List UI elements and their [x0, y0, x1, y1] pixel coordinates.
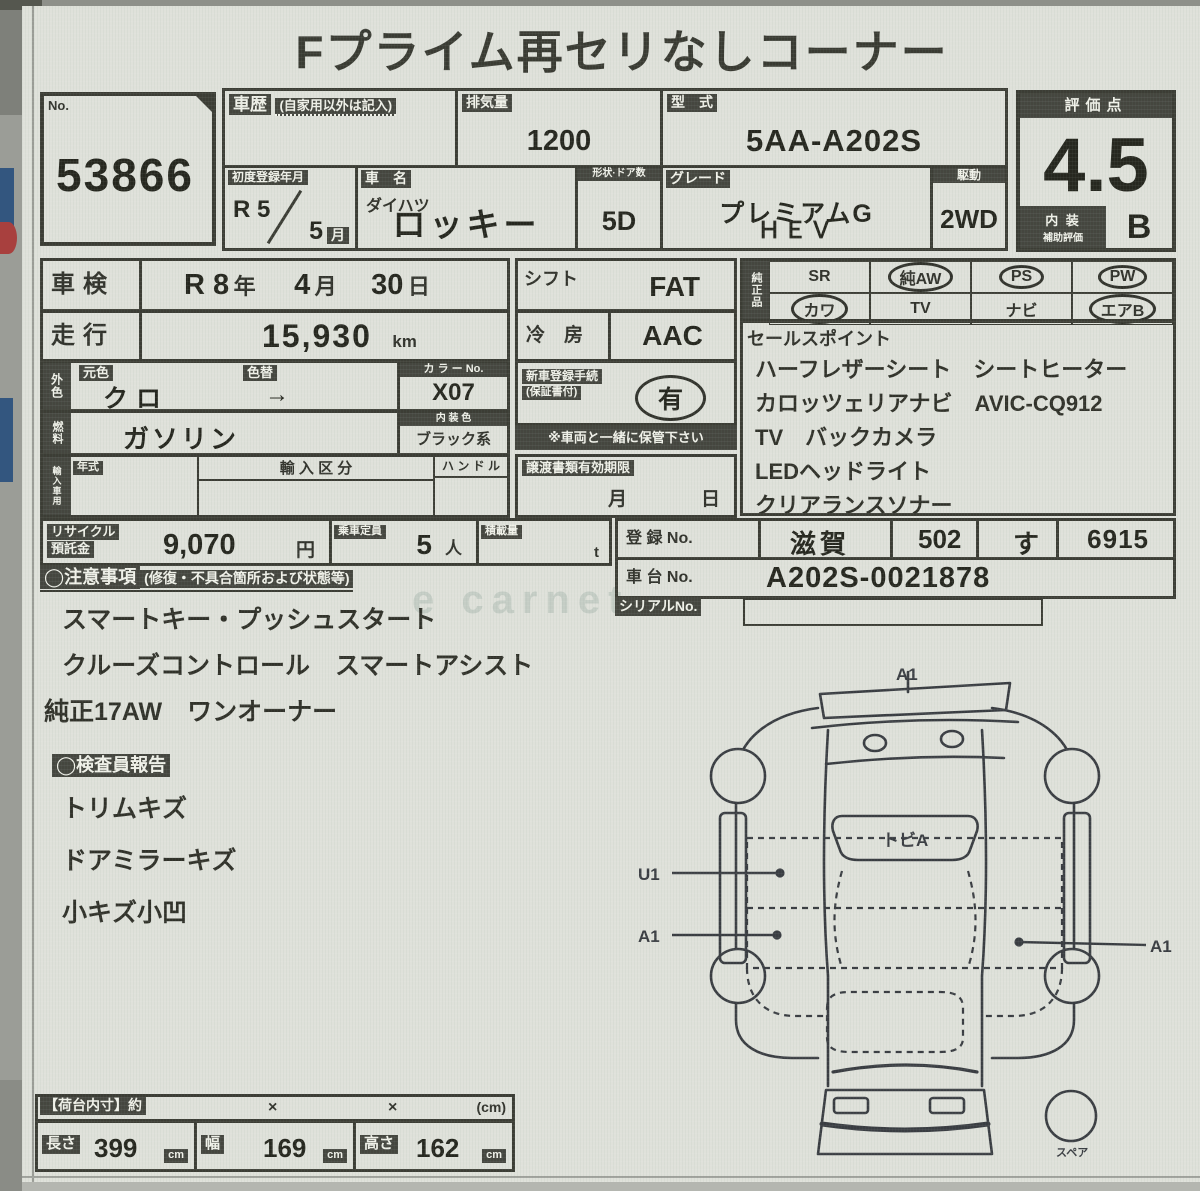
- genuine-item: 純AW: [870, 261, 971, 293]
- aircon-value-cell: AAC: [608, 310, 737, 362]
- cautions-header-note: (修復・不具合箇所および状態等): [140, 570, 353, 588]
- score-value: 4.5: [1020, 122, 1172, 209]
- photo-bottom-edge: [22, 1182, 1200, 1191]
- diagram-glass-damage-label: トビA: [882, 831, 928, 850]
- serial-row: シリアルNo.: [615, 598, 1176, 628]
- serial-value-box: [743, 598, 1043, 626]
- genuine-label: 純正品: [743, 261, 769, 319]
- auction-sheet-photo: e carnet Fプライム再セリなしコーナー No. 53866 車歴 (自家…: [0, 0, 1200, 1191]
- car-damage-diagram: A1 トビA U1 A1 A1 スペア: [630, 666, 1186, 1162]
- first-reg-cell: 初度登録年月 R 5 5 月: [222, 165, 358, 251]
- first-reg-era: R 5: [233, 196, 270, 224]
- cautions-section: ◯注意事項(修復・不具合箇所および状態等) スマートキー・プッシュスタート クル…: [40, 566, 600, 728]
- diagram-right-damage-label: A1: [1150, 937, 1172, 956]
- auction-sheet: e carnet Fプライム再セリなしコーナー No. 53866 車歴 (自家…: [22, 6, 1200, 1182]
- width-cell: 幅 169 cm: [194, 1120, 356, 1172]
- diagram-spare-label: スペア: [1056, 1146, 1088, 1159]
- first-reg-month-unit: 月: [327, 227, 349, 245]
- car-name-cell: 車 名 ダイハツ ロッキー: [355, 165, 578, 251]
- history-cell: 車歴 (自家用以外は記入): [222, 88, 458, 168]
- diagram-left-damage-label-u1: U1: [638, 865, 660, 884]
- aircon-label-cell: 冷 房: [515, 310, 611, 362]
- doors-cell: 形状·ドア数 5D: [575, 165, 663, 251]
- sales-point-line: カロッツェリアナビ AVIC-CQ912: [755, 387, 1173, 421]
- interior-color-cell: 内 装 色 ブラック系: [397, 410, 510, 456]
- inspector-line: ドアミラーキズ: [62, 841, 472, 877]
- height-cell: 高さ 162 cm: [353, 1120, 515, 1172]
- import-year-cell: 年式: [71, 457, 199, 515]
- import-row: 輸入車用 年式 輸 入 区 分 ハ ン ド ル: [40, 454, 510, 518]
- grade-line2: ＨＥＶ: [663, 211, 930, 245]
- caution-line: 純正17AW ワンオーナー: [44, 692, 600, 728]
- inspector-header: ◯検査員報告: [52, 754, 170, 777]
- doors-label: 形状·ドア数: [578, 168, 660, 181]
- import-label: 輸入車用: [43, 457, 71, 515]
- drive-cell: 駆動 2WD: [930, 165, 1008, 251]
- registration-row: 登 録 No. 滋賀 502 す 6915: [615, 518, 1176, 560]
- color-no-value: X07: [400, 379, 507, 407]
- shaken-label-cell: 車検: [40, 258, 142, 312]
- import-class-cell: 輸 入 区 分: [199, 457, 435, 515]
- lot-number-box: No. 53866: [40, 92, 216, 246]
- page-title: Fプライム再セリなしコーナー: [182, 16, 1062, 82]
- diagram-rear-damage-label: A1: [896, 666, 918, 684]
- fuel-row: 燃料 ガソリン: [40, 410, 400, 456]
- sales-point-line: LEDヘッドライト: [755, 455, 1173, 489]
- first-reg-month: 5: [309, 217, 323, 246]
- score-label: 評価点: [1020, 94, 1172, 118]
- drive-value: 2WD: [933, 204, 1005, 235]
- lot-fold-corner: [196, 96, 212, 112]
- interior-score-value: B: [1106, 206, 1172, 248]
- sales-point-line: TV バックカメラ: [755, 421, 1173, 455]
- car-model: ロッキー: [358, 198, 575, 246]
- new-car-docs-value: 有: [635, 375, 706, 421]
- doors-value: 5D: [578, 206, 660, 237]
- length-cell: 長さ 399 cm: [35, 1120, 197, 1172]
- displacement-label: 排気量: [462, 94, 512, 112]
- ext-color-label: 外色: [43, 363, 71, 409]
- mileage-value-cell: 15,930 km: [139, 310, 510, 362]
- seating-cell: 乗車定員 5 人: [329, 518, 479, 566]
- interior-color-label: 内 装 色: [400, 413, 507, 426]
- chassis-row: 車 台 No. A202S-0021878: [615, 557, 1176, 599]
- repaint-value: →: [265, 381, 289, 409]
- cargo-dims-header-row: 【荷台内寸】約 × × (cm): [35, 1094, 515, 1122]
- caution-line: スマートキー・プッシュスタート: [62, 600, 600, 636]
- photo-blue-strip-2: [0, 398, 13, 482]
- sheet-left-shadow: [32, 6, 34, 1182]
- genuine-item: PS: [971, 261, 1072, 293]
- first-reg-label: 初度登録年月: [228, 170, 308, 185]
- shaken-value-cell: R 8 年 4 月 30 日: [139, 258, 510, 312]
- color-no-cell: カ ラ ー No. X07: [397, 360, 510, 412]
- displacement-cell: 排気量 1200: [455, 88, 663, 168]
- displacement-value: 1200: [458, 125, 660, 158]
- recycle-cell: リサイクル 預託金 9,070 円: [40, 518, 332, 566]
- sales-point-line: ハーフレザーシート シートヒーター: [755, 353, 1173, 387]
- inspector-section: ◯検査員報告 トリムキズ ドアミラーキズ 小キズ小凹: [52, 754, 472, 929]
- model-code-cell: 型 式 5AA-A202S: [660, 88, 1008, 168]
- diagram-left-damage-label-a1: A1: [638, 927, 660, 946]
- new-car-docs-note: ※車両と一緒に保管下さい: [515, 426, 737, 450]
- photo-left-edge-dark-top: [0, 0, 22, 115]
- genuine-item: PW: [1072, 261, 1173, 293]
- sheet-bottom-line: [22, 1176, 1200, 1178]
- interior-color-value: ブラック系: [400, 428, 507, 449]
- photo-red-mark: [0, 222, 17, 254]
- caution-line: クルーズコントロール スマートアシスト: [62, 646, 600, 682]
- inspector-line: 小キズ小凹: [62, 893, 472, 929]
- history-label: 車歴: [229, 94, 271, 115]
- fuel-value: ガソリン: [123, 419, 239, 456]
- ext-color-row: 外色 元色 クロ 色替 →: [40, 360, 400, 412]
- transfer-docs-cell: 譲渡書類有効期限 月 日: [515, 454, 737, 518]
- grade-label: グレード: [666, 170, 730, 188]
- model-code-label: 型 式: [667, 94, 717, 112]
- photo-left-edge-dark-bottom: [0, 1080, 22, 1191]
- photo-blue-strip-1: [0, 168, 14, 226]
- car-name-label: 車 名: [361, 170, 411, 188]
- lot-number-value: 53866: [44, 148, 206, 202]
- model-code-value: 5AA-A202S: [663, 123, 1005, 159]
- inspector-line: トリムキズ: [62, 789, 472, 825]
- cautions-header: ◯注意事項: [40, 566, 140, 589]
- drive-label: 駆動: [933, 168, 1005, 183]
- first-reg-slash: [267, 190, 302, 244]
- lot-number-label: No.: [48, 98, 69, 113]
- genuine-box: 純正品 SR 純AW PS PW カワ TV ナビ エアB: [740, 258, 1176, 322]
- shift-cell: シフト FAT: [515, 258, 737, 312]
- fuel-label: 燃料: [43, 413, 71, 453]
- payload-cell: 積載量 t: [476, 518, 612, 566]
- color-no-label: カ ラ ー No.: [400, 363, 507, 377]
- history-note: (自家用以外は記入): [275, 98, 396, 116]
- grade-cell: グレード プレミアムG ＨＥＶ: [660, 165, 933, 251]
- interior-score-label: 内 装 補助評価: [1020, 206, 1106, 248]
- score-box: 評価点 4.5 内 装 補助評価 B: [1016, 90, 1176, 252]
- mileage-label-cell: 走行: [40, 310, 142, 362]
- sales-points-label: セールスポイント: [747, 325, 1173, 351]
- import-handle-cell: ハ ン ド ル: [435, 457, 507, 515]
- sales-points-box: セールスポイント ハーフレザーシート シートヒーター カロッツェリアナビ AVI…: [740, 320, 1176, 516]
- repaint-label: 色替: [243, 365, 277, 381]
- new-car-docs-cell: 新車登録手続 (保証書付) 有: [515, 360, 737, 426]
- genuine-item: SR: [769, 261, 870, 293]
